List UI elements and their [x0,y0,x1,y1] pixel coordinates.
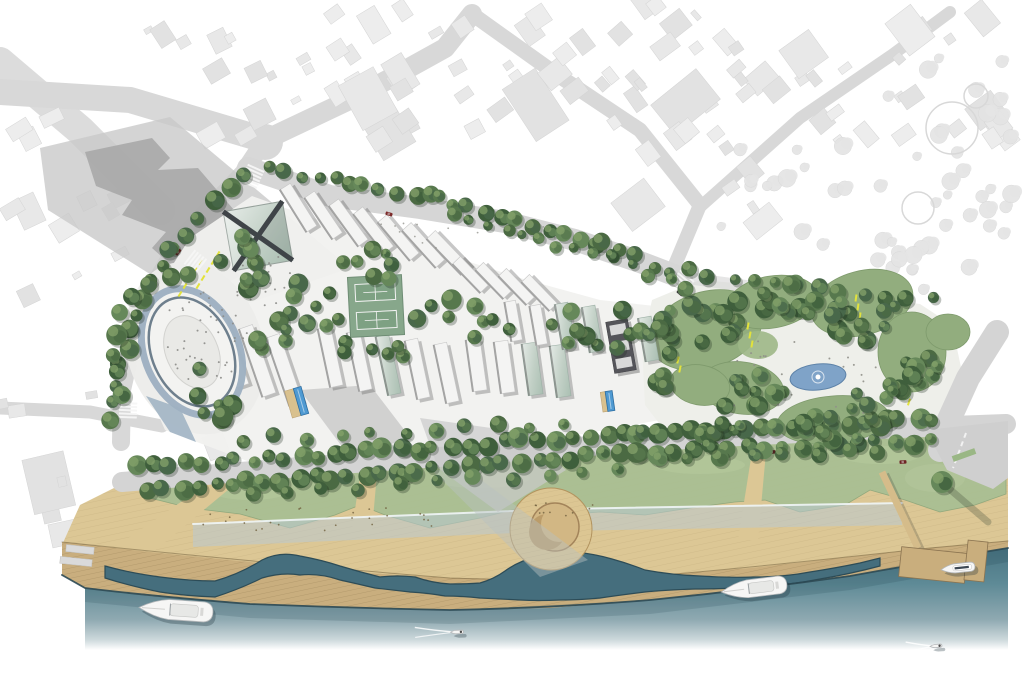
fountain [816,375,821,380]
site-plan-canvas [0,0,1024,683]
masterplan-site-plan [0,0,1024,683]
pier-platform [964,540,988,582]
car [899,460,906,464]
pool [600,391,615,412]
